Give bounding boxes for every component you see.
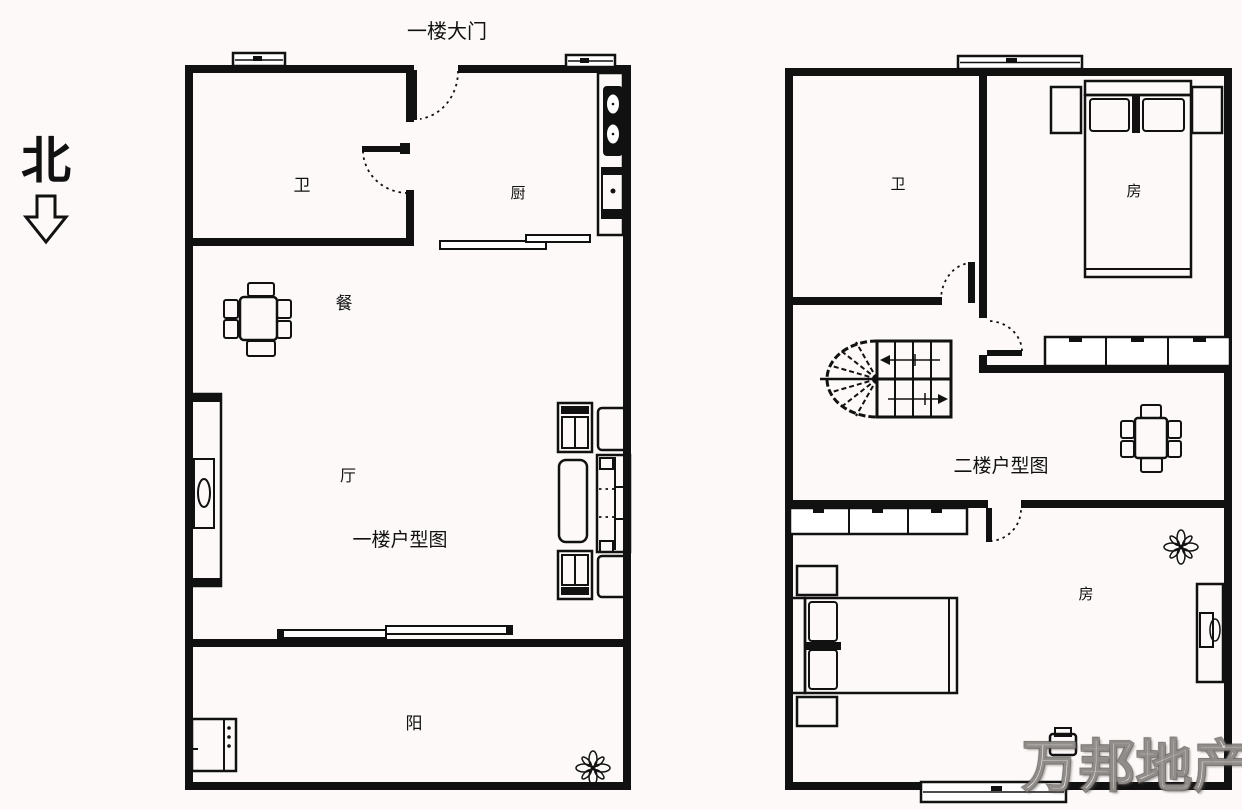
floor2-bedroom-top-door (987, 321, 1022, 356)
floor2-title: 二楼户型图 (953, 455, 1048, 477)
floor1-bathroom-door (362, 143, 410, 193)
north-arrow-icon (26, 196, 66, 242)
dining-table-set (224, 283, 291, 356)
wardrobe-bedroom-bottom (790, 508, 967, 534)
watermark: 万邦地产 (1022, 722, 1242, 803)
floor2-bedroom-top-label: 房 (1126, 183, 1141, 200)
floorplan-page: 北 一楼大门 (0, 0, 1242, 810)
floor1-window-left (233, 53, 285, 66)
floorplan-canvas: 北 一楼大门 (0, 0, 1242, 810)
dresser (1197, 584, 1223, 682)
sofa-set (558, 403, 630, 599)
floor2-window-top (958, 56, 1082, 69)
wardrobe-bedroom-top (1045, 337, 1230, 366)
floor1-dining-label: 餐 (336, 294, 353, 313)
floor2-bedroom-bottom-label: 房 (1078, 586, 1093, 603)
kitchen-sink (601, 167, 625, 218)
floor1-balcony-label: 阳 (406, 714, 423, 733)
entrance-door (410, 70, 458, 120)
north-indicator: 北 (21, 133, 71, 242)
floor1-kitchen-label: 厨 (510, 185, 525, 202)
floor2-walls (785, 68, 1232, 790)
kitchen-counters-low (440, 235, 590, 249)
floor2-plan: 卫 房 二楼户型图 房 (785, 56, 1232, 802)
floor1-plan: 卫 厨 餐 厅 一楼户型图 阳 (185, 53, 631, 790)
floor1-bathroom-label: 卫 (294, 176, 311, 195)
staircase (820, 341, 951, 417)
floor2-bathroom-door (941, 262, 975, 303)
bed-bedroom-top (1051, 81, 1222, 277)
floor2-dining-table-set (1121, 405, 1181, 472)
plant-icon (576, 751, 610, 785)
bed-bedroom-bottom (791, 566, 957, 726)
north-label: 北 (21, 133, 71, 189)
floor2-bedroom-bottom-door (986, 508, 1021, 542)
balcony-sliding-door (278, 626, 512, 638)
floor1-window-right (566, 55, 615, 67)
floor2-bathroom-label: 卫 (890, 176, 905, 193)
washing-machine-icon (192, 719, 236, 771)
plant-icon (1164, 530, 1198, 564)
floor1-title: 一楼户型图 (352, 529, 447, 551)
tv-cabinet (191, 394, 221, 586)
floor1-walls (185, 65, 631, 790)
entrance-label: 一楼大门 (407, 20, 487, 43)
floor1-living-label: 厅 (340, 468, 356, 485)
